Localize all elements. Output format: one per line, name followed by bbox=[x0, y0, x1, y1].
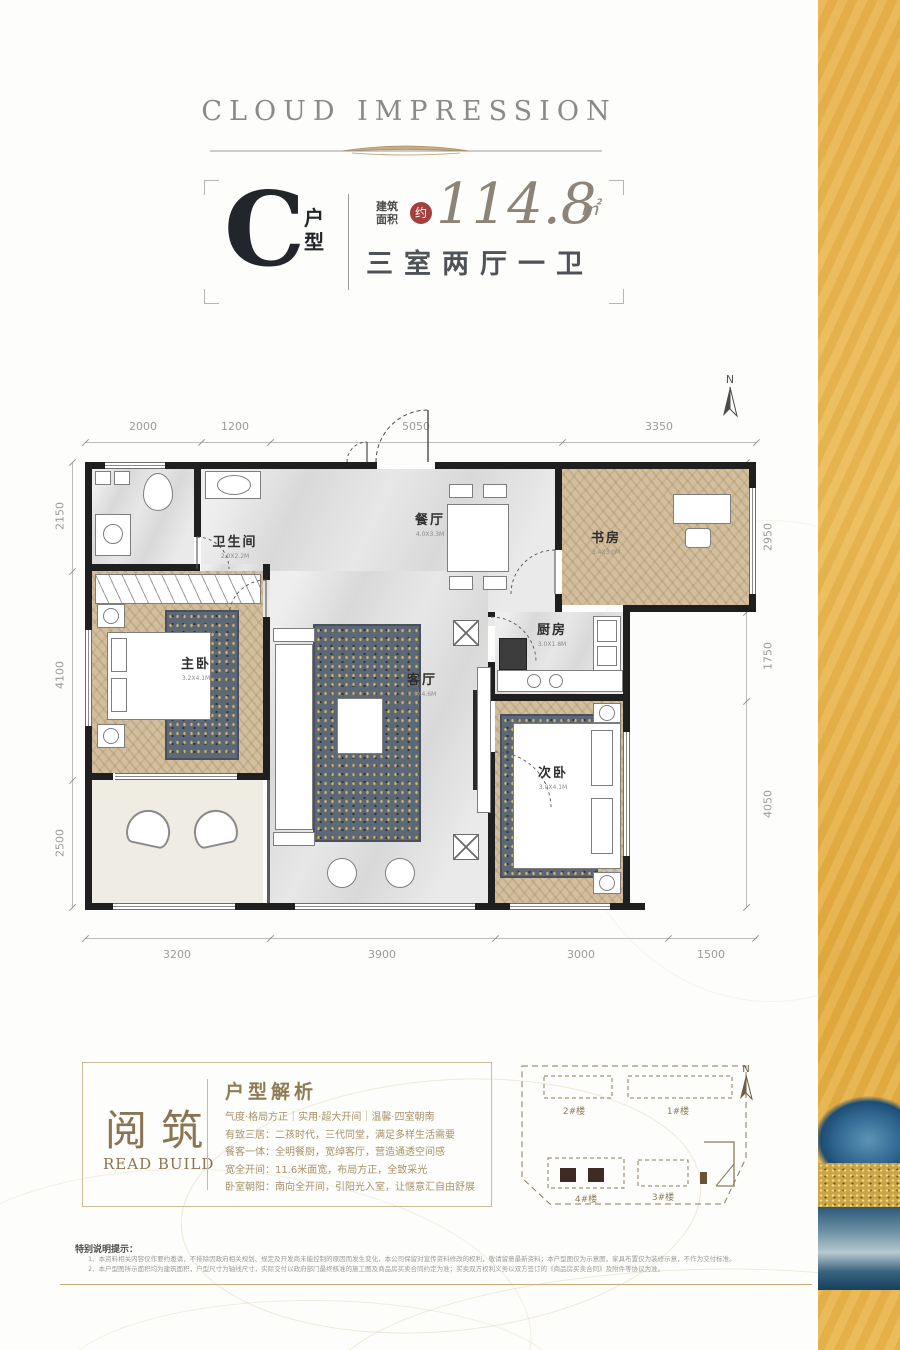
dim-col-left: 2150 4100 2500 bbox=[46, 462, 78, 910]
room-name: 书房 bbox=[591, 531, 621, 546]
corner-mark bbox=[609, 180, 624, 195]
room-size: 4.0X3.3M bbox=[398, 528, 462, 542]
brand-name: 阅筑 bbox=[105, 1097, 217, 1158]
area-label-line: 面积 bbox=[376, 213, 398, 226]
area-unit: ㎡ bbox=[580, 194, 599, 221]
room-name: 客厅 bbox=[407, 673, 437, 688]
layout-text: 三室两厅一卫 bbox=[366, 242, 594, 281]
disclaimer-line: 2、本户型图所示面积均为建筑面积，户型尺寸为轴线尺寸，实际交付以政府部门最终核准… bbox=[88, 1265, 812, 1275]
building-label: 1#楼 bbox=[667, 1105, 689, 1117]
dim-label: 1750 bbox=[762, 642, 775, 670]
building-label: 2#楼 bbox=[563, 1105, 585, 1117]
unit-suffix-char: 型 bbox=[304, 230, 324, 254]
room-label-study: 书房 3.4X3.0M bbox=[574, 532, 638, 560]
room-size: 3.9X4.6M bbox=[390, 688, 454, 702]
corner-mark bbox=[609, 289, 624, 304]
room-label-living: 客厅 3.9X4.6M bbox=[390, 674, 454, 702]
dim-label: 3000 bbox=[567, 948, 595, 961]
unit-suffix-char: 户 bbox=[304, 206, 324, 230]
brand-name-en: READ BUILD bbox=[103, 1155, 214, 1173]
building-label: 3#楼 bbox=[652, 1191, 674, 1203]
dim-label: 3200 bbox=[163, 948, 191, 961]
room-size: 3.2X4.1M bbox=[164, 672, 228, 686]
blue-mountain-painting bbox=[818, 1075, 900, 1290]
page-title: CLOUD IMPRESSION bbox=[0, 96, 818, 127]
analysis-line: 有致三居：二孩时代，三代同堂，满足多样生活需要 bbox=[225, 1127, 483, 1145]
building-label: 4#楼 bbox=[575, 1193, 597, 1205]
analysis-line: 气度·格局方正｜实用·超大开间｜温馨·四室朝南 bbox=[225, 1109, 483, 1127]
room-label-kitchen: 厨房 3.0X1.8M bbox=[520, 624, 584, 652]
analysis-line: 宽全开间：11.6米面宽，布局方正，全致采光 bbox=[225, 1162, 483, 1180]
unit-letter: C bbox=[224, 170, 305, 290]
room-label-master: 主卧 3.2X4.1M bbox=[164, 658, 228, 686]
title-separator bbox=[348, 194, 349, 290]
highlighted-unit bbox=[588, 1168, 604, 1182]
bottom-rule bbox=[60, 1284, 812, 1285]
compass-n: N bbox=[726, 373, 734, 386]
room-label-dining: 餐厅 4.0X3.3M bbox=[398, 514, 462, 542]
dim-label: 2950 bbox=[762, 523, 775, 551]
analysis-line: 卧室朝阳：南向全开间，引阳光入室，让惬意汇自由舒展 bbox=[225, 1179, 483, 1197]
panel-separator bbox=[207, 1079, 208, 1190]
background-swirl bbox=[60, 1300, 562, 1350]
info-panel: 阅筑 READ BUILD 户型解析 气度·格局方正｜实用·超大开间｜温馨·四室… bbox=[82, 1062, 492, 1207]
area-label-line: 建筑 bbox=[376, 200, 398, 213]
dim-label: 2500 bbox=[54, 829, 67, 857]
disclaimer-line: 1、本资料相关内容仅作要约邀请，不排除因政府相关规划、规定及开发商未能控制的原因… bbox=[88, 1255, 812, 1265]
room-size: 3.0X1.8M bbox=[520, 638, 584, 652]
dim-label: 3900 bbox=[368, 948, 396, 961]
floorplan: 卫生间 2.0X2.2M 餐厅 4.0X3.3M 书房 3.4X3.0M 主卧 … bbox=[85, 462, 757, 910]
room-name: 餐厅 bbox=[415, 513, 445, 528]
disclaimer-heading: 特别说明提示： bbox=[75, 1242, 138, 1255]
room-size: 3.0X4.1M bbox=[521, 781, 585, 795]
highlighted-unit bbox=[560, 1168, 576, 1182]
corner-mark bbox=[204, 180, 219, 195]
site-compass: N bbox=[734, 1062, 758, 1108]
room-label-bathroom: 卫生间 2.0X2.2M bbox=[203, 536, 267, 564]
room-label-second: 次卧 3.0X4.1M bbox=[521, 767, 585, 795]
unit-title-block: C 户 型 建筑 面积 约 114.8 ㎡ 三室两厅一卫 bbox=[208, 184, 620, 300]
room-size: 3.4X3.0M bbox=[574, 546, 638, 560]
door-arcs bbox=[85, 402, 757, 910]
dim-label: 1500 bbox=[697, 948, 725, 961]
poster-page: CLOUD IMPRESSION C 户 型 建筑 面积 约 114.8 ㎡ 三… bbox=[0, 0, 900, 1350]
dim-label: 4100 bbox=[54, 661, 67, 689]
dim-label: 2150 bbox=[54, 502, 67, 530]
dim-row-bottom: 3200 3900 3000 1500 bbox=[85, 928, 757, 968]
unit-suffix: 户 型 bbox=[304, 206, 326, 254]
room-size: 2.0X2.2M bbox=[203, 550, 267, 564]
dim-label: 4050 bbox=[762, 790, 775, 818]
room-name: 主卧 bbox=[181, 657, 211, 672]
disclaimer-body: 1、本资料相关内容仅作要约邀请，不排除因政府相关规划、规定及开发商未能控制的原因… bbox=[88, 1255, 812, 1274]
header-divider bbox=[206, 138, 606, 164]
analysis-heading: 户型解析 bbox=[225, 1077, 317, 1104]
area-value: 114.8 bbox=[436, 172, 596, 237]
site-plan: 2#楼 1#楼 4#楼 3#楼 bbox=[508, 1060, 762, 1216]
compass-n: N bbox=[742, 1064, 749, 1075]
approx-badge: 约 bbox=[410, 202, 432, 224]
room-name: 厨房 bbox=[537, 623, 567, 638]
room-name: 卫生间 bbox=[212, 535, 257, 550]
area-label: 建筑 面积 bbox=[376, 200, 398, 226]
room-name: 次卧 bbox=[538, 766, 568, 781]
analysis-line: 餐客一体：全明餐厨，宽绰客厅，营造通透空间感 bbox=[225, 1144, 483, 1162]
analysis-lines: 气度·格局方正｜实用·超大开间｜温馨·四室朝南 有致三居：二孩时代，三代同堂，满… bbox=[225, 1109, 483, 1197]
corner-mark bbox=[204, 289, 219, 304]
